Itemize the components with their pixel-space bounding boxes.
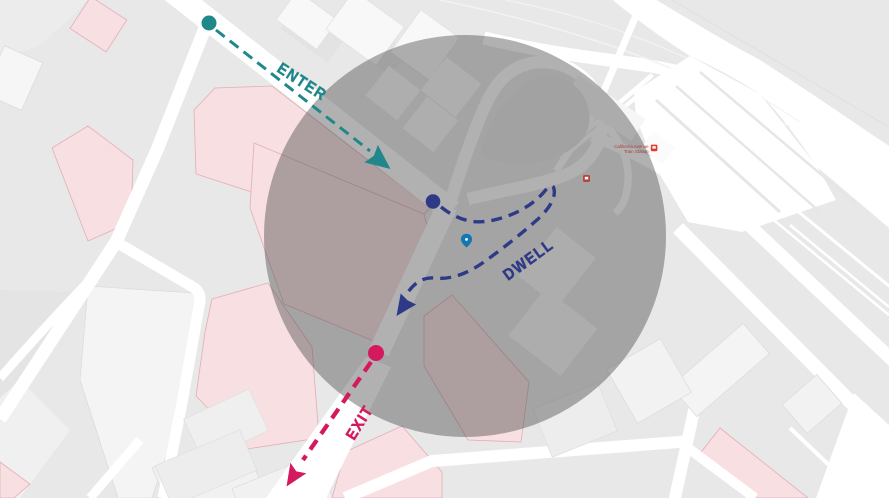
svg-text:Train Station: Train Station	[624, 149, 649, 154]
